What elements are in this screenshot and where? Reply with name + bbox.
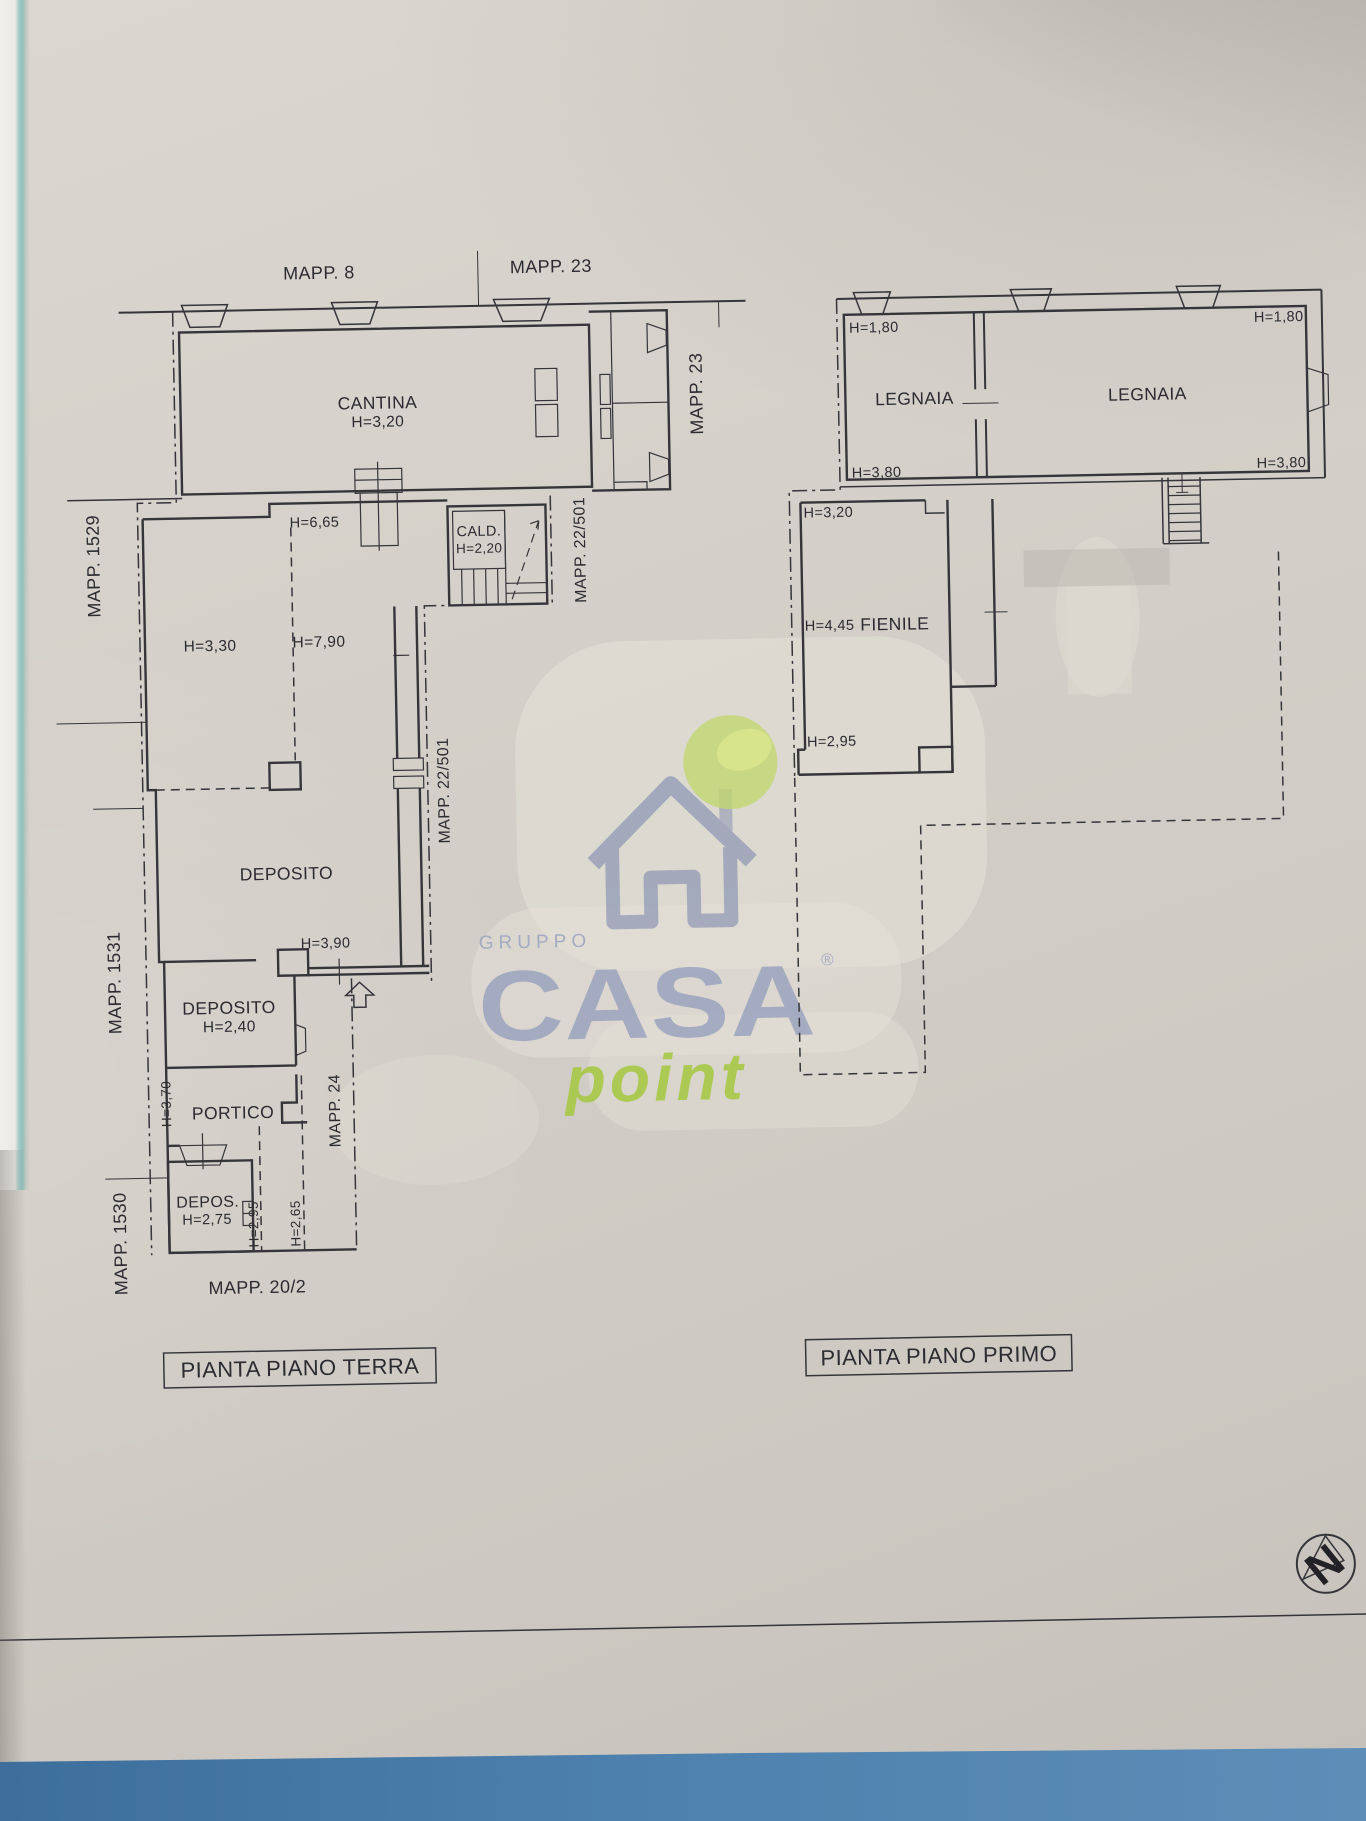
height-label-legnaia-right-top: H=1,80 (1254, 309, 1304, 326)
right-wall-double (394, 606, 423, 966)
annex-door-lower (649, 452, 669, 481)
legnaia-divider (974, 312, 987, 477)
parcel-label-mapp-23-right: MAPP. 23 (685, 353, 707, 435)
height-label-h390: H=3,90 (301, 935, 351, 952)
room-label-cald: CALD. (456, 523, 501, 540)
watermark-registered-mark: ® (821, 950, 834, 969)
first-floor-title-box: PIANTA PIANO PRIMO (805, 1335, 1072, 1376)
north-compass: N (1295, 1533, 1356, 1596)
annex-corridor (611, 310, 670, 490)
ground-floor-title: PIANTA PIANO TERRA (180, 1353, 419, 1383)
first-stairs (1162, 473, 1209, 544)
height-label-depos-tiny: H=2,75 (182, 1212, 232, 1229)
room-label-fienile: FIENILE (860, 613, 929, 634)
height-label-fienile-bottom: H=2,95 (807, 734, 857, 751)
pillar-block (269, 762, 301, 790)
height-label-h330: H=3,30 (183, 638, 236, 656)
ground-fence-chimneys (181, 298, 549, 327)
height-label-cald: H=2,20 (456, 540, 503, 556)
parcel-label-mapp-1531: MAPP. 1531 (104, 931, 126, 1034)
height-label-legnaia-left-top: H=1,80 (849, 320, 899, 337)
scanned-floor-plan-photo: GRUPPO CASA ® point (0, 0, 1366, 1821)
height-label-fienile-mid: H=4,45 (805, 618, 855, 635)
room-label-legnaia-right: LEGNAIA (1108, 383, 1187, 405)
height-label-h295-ground: H=2,95 (246, 1201, 262, 1248)
height-label-h370: H=3,70 (158, 1081, 174, 1128)
parcel-label-mapp-1529: MAPP. 1529 (82, 515, 104, 618)
stair-direction-arrow (511, 521, 540, 600)
room-label-depos-tiny: DEPOS. (176, 1194, 239, 1212)
room-label-portico: PORTICO (192, 1102, 275, 1124)
parcel-label-mapp-20-2: MAPP. 20/2 (208, 1276, 306, 1298)
lower-unit-left-wall (143, 519, 170, 1253)
room-label-cantina: CANTINA (337, 392, 417, 414)
height-label-cantina: H=3,20 (351, 413, 404, 431)
ground-floor-title-box: PIANTA PIANO TERRA (164, 1348, 437, 1388)
watermark-gray-bar (1023, 548, 1170, 588)
watermark-casapoint-logo: GRUPPO CASA ® point (318, 536, 1181, 1187)
chimney-below-cantina (355, 461, 404, 551)
height-label-fienile-top: H=3,20 (803, 505, 853, 522)
height-label-h790: H=7,90 (292, 633, 345, 651)
parcel-label-mapp-24: MAPP. 24 (326, 1074, 344, 1147)
entrance-arrow-icon (346, 982, 374, 1008)
floor-plan-drawing: GRUPPO CASA ® point (0, 0, 1366, 1821)
parcel-label-mapp-1530: MAPP. 1530 (110, 1192, 132, 1295)
height-label-h265: H=2,65 (288, 1200, 304, 1247)
parcel-label-mapp-8: MAPP. 8 (283, 262, 355, 283)
annex-door-upper (647, 323, 667, 352)
portico-chimney (179, 1133, 227, 1170)
height-label-h665: H=6,65 (290, 515, 340, 532)
parcel-label-mapp-23-top: MAPP. 23 (510, 256, 592, 278)
height-label-deposito-small: H=2,40 (203, 1018, 256, 1036)
height-label-legnaia-right-bottom: H=3,80 (1257, 455, 1307, 472)
paper-left-shadow (0, 1150, 26, 1762)
legnaia-right-door (1307, 368, 1329, 412)
page-frame-bottom-line (0, 1613, 1366, 1640)
height-label-legnaia-left-bottom: H=3,80 (852, 465, 902, 482)
room-label-deposito-small: DEPOSITO (182, 997, 276, 1019)
parcel-label-mapp-22-501-upper: MAPP. 22/501 (571, 497, 590, 603)
corner-block (278, 949, 308, 976)
first-floor-title: PIANTA PIANO PRIMO (820, 1341, 1057, 1371)
adjacent-sheet-edge-teal (0, 0, 30, 1190)
portico-right-step (281, 1074, 307, 1122)
passage-walls (308, 966, 429, 975)
parcel-label-mapp-22-501-lower: MAPP. 22/501 (435, 737, 454, 843)
cantina-wall-windows (535, 367, 611, 439)
right-wall-windows (393, 758, 424, 789)
ground-dashed-lines (151, 527, 305, 1253)
watermark-point-text: point (563, 1039, 748, 1117)
room-label-deposito-main: DEPOSITO (240, 863, 334, 885)
ground-bottom-wall (170, 1249, 357, 1253)
room-label-legnaia-left: LEGNAIA (875, 388, 954, 410)
